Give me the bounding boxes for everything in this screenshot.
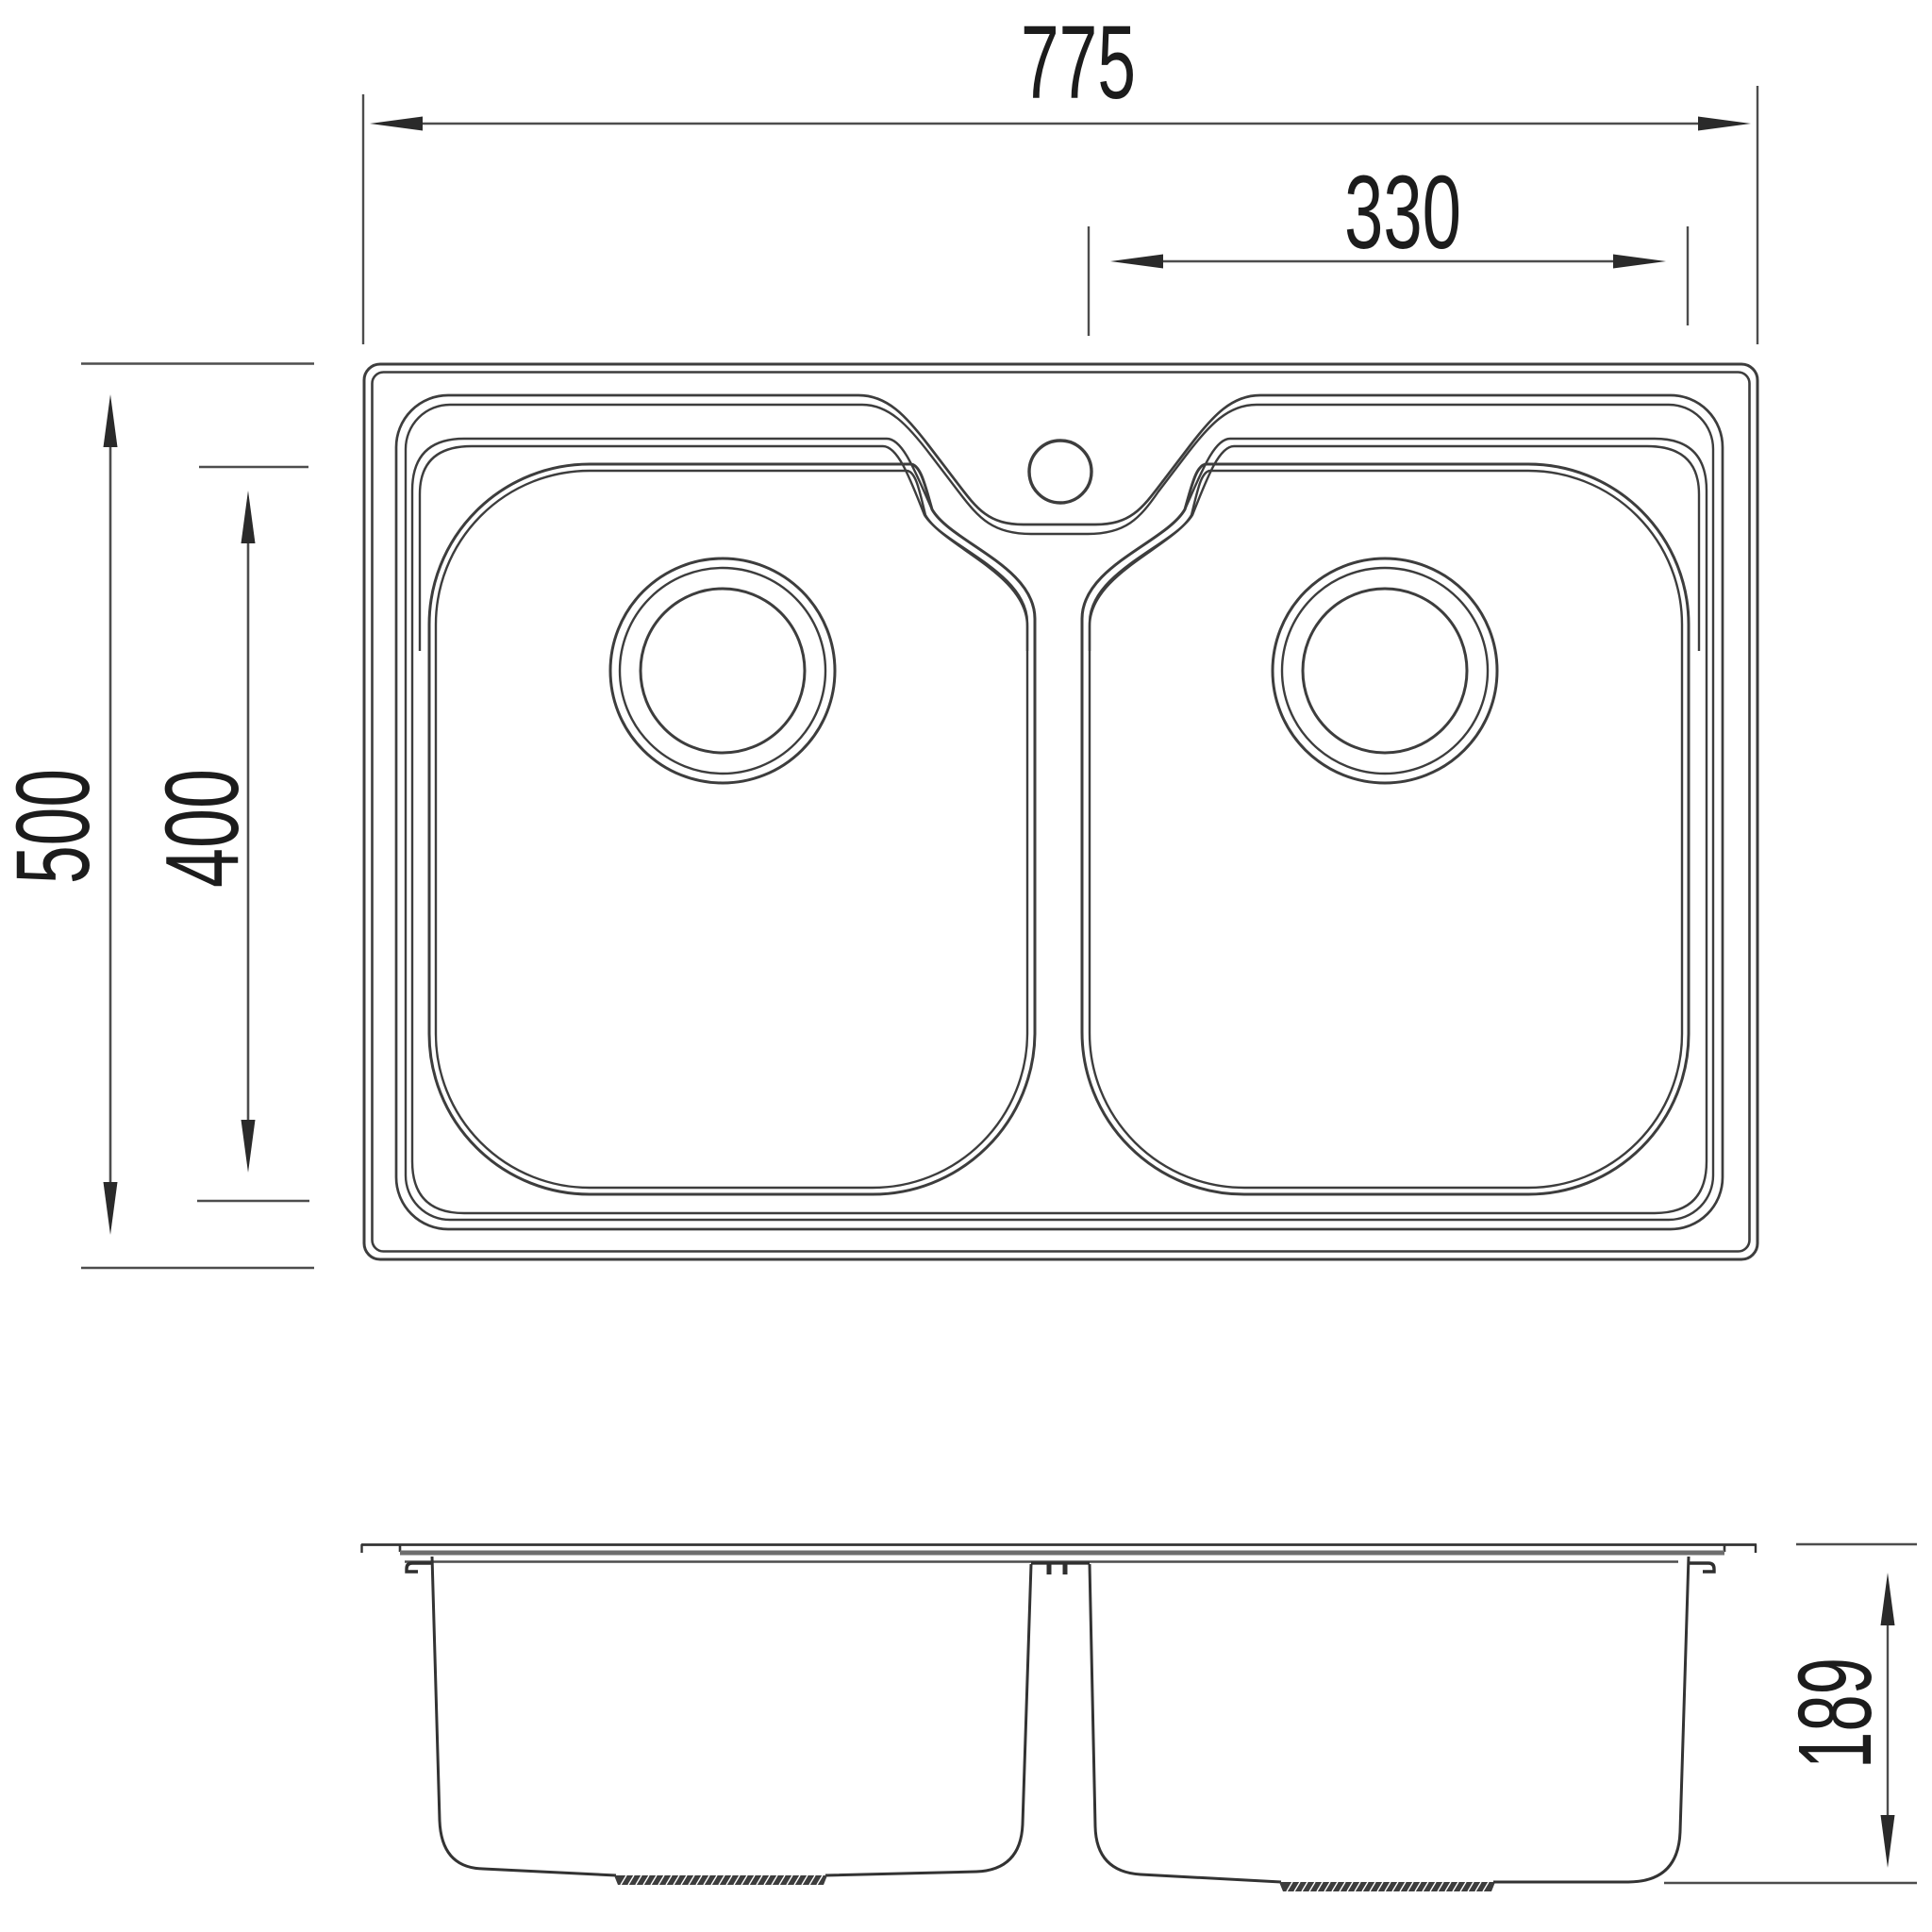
svg-text:775: 775: [1021, 5, 1136, 121]
svg-text:500: 500: [0, 769, 111, 884]
svg-text:400: 400: [144, 769, 260, 888]
svg-text:189: 189: [1777, 1657, 1893, 1769]
svg-text:330: 330: [1344, 155, 1461, 271]
